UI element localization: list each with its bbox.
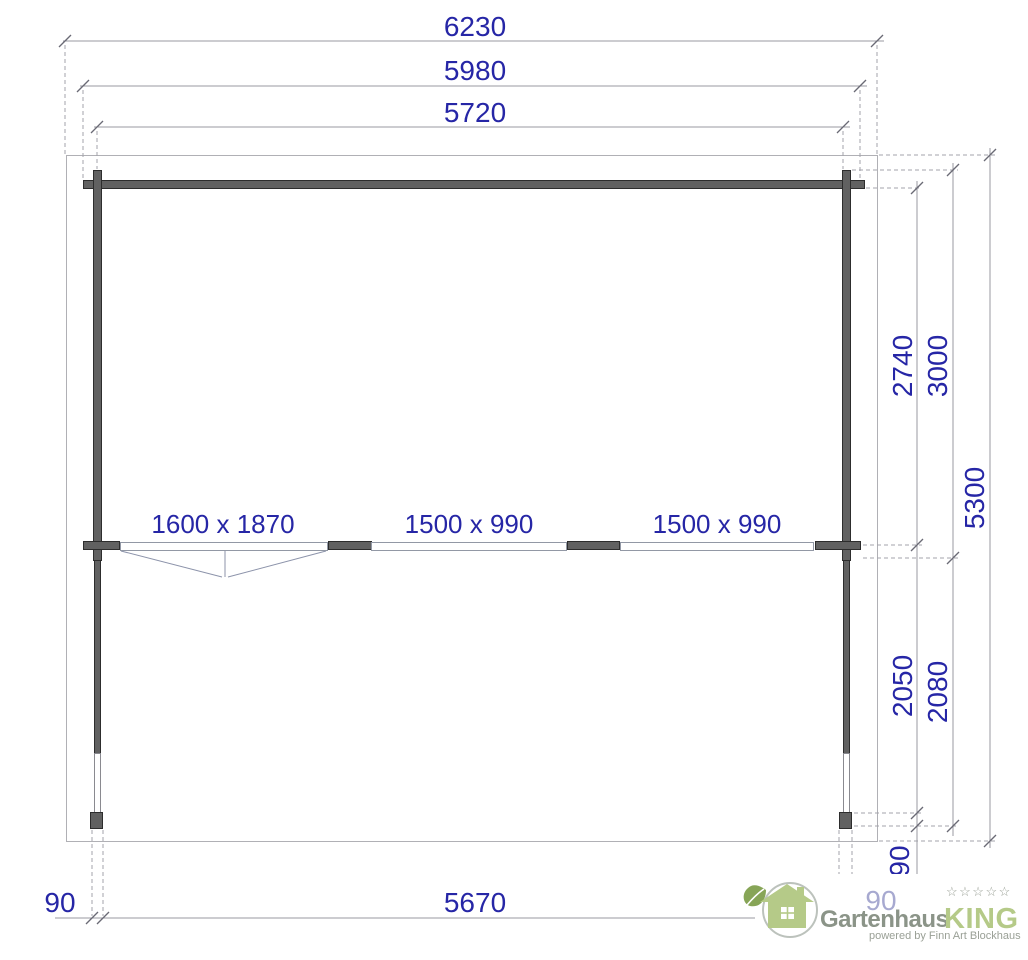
extension-lines — [65, 45, 995, 916]
wall-width-dim: 5980 — [444, 57, 506, 85]
post-depth-dim: 90 — [886, 845, 914, 876]
window1-size-label: 1500 x 990 — [405, 511, 534, 537]
overall-width-dim: 6230 — [444, 13, 506, 41]
terrace-inner-dim: 2050 — [889, 655, 917, 717]
middle-wall-segment — [83, 541, 120, 550]
right-wall-upper — [842, 170, 851, 561]
left-wall-lower — [94, 560, 101, 754]
right-corner-post — [839, 812, 852, 829]
middle-wall-segment — [567, 541, 620, 550]
room-depth-dim: 2740 — [889, 335, 917, 397]
dimension-ticks — [59, 35, 996, 924]
left-wall-upper — [93, 170, 102, 561]
logo-tagline: powered by Finn Art Blockhaus — [869, 930, 1021, 942]
cabin-depth-dim: 3000 — [924, 335, 952, 397]
middle-wall-segment — [815, 541, 861, 550]
overall-depth-dim: 5300 — [961, 467, 989, 529]
window2-size-label: 1500 x 990 — [653, 511, 782, 537]
window-opening — [620, 542, 814, 551]
dimension-linework — [0, 0, 1028, 960]
middle-wall-segment — [328, 541, 372, 550]
door-size-label: 1600 x 1870 — [151, 511, 294, 537]
left-post-width-dim: 90 — [44, 889, 75, 917]
rating-stars: ☆☆☆☆☆ — [946, 884, 1012, 900]
inner-width-dim: 5720 — [444, 99, 506, 127]
left-corner-post — [90, 812, 103, 829]
post-span-dim: 5670 — [444, 889, 506, 917]
right-post-shaft — [843, 753, 850, 813]
front-wall-beam — [83, 180, 865, 189]
right-wall-lower — [843, 560, 850, 754]
window-opening — [371, 542, 567, 551]
double-door-opening — [120, 542, 328, 551]
left-post-shaft — [94, 753, 101, 813]
logo-house-icon — [740, 878, 825, 940]
terrace-depth-dim: 2080 — [924, 661, 952, 723]
floor-plan-drawing: 6230 5980 5720 1600 x 1870 1500 x 990 15… — [0, 0, 1028, 960]
